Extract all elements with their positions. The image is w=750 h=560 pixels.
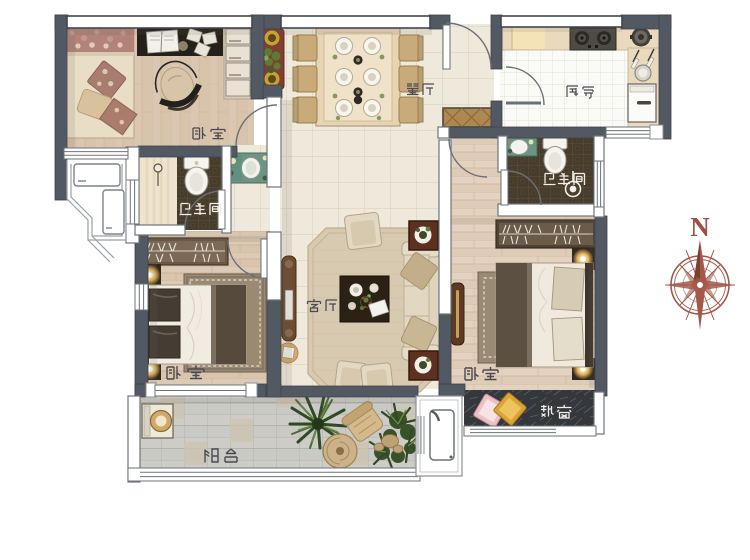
- svg-text:N: N: [690, 212, 710, 242]
